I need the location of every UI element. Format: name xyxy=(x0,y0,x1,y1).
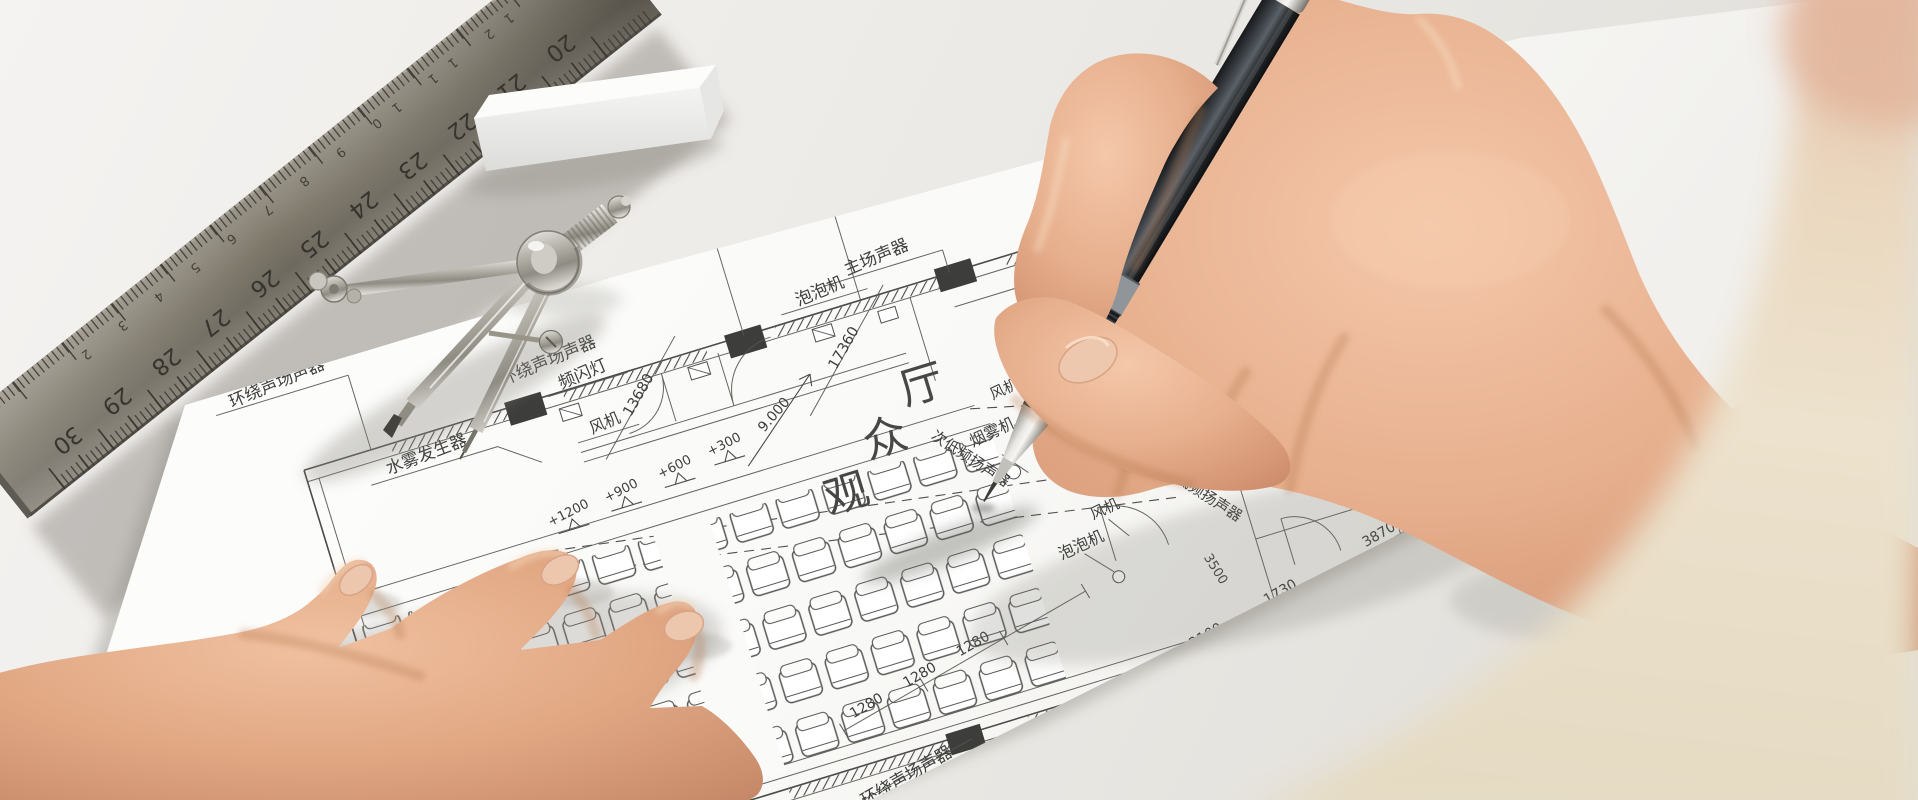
photo-scene: 30 29 28 27 26 25 24 23 22 21 20 13 12 1… xyxy=(0,0,1918,800)
